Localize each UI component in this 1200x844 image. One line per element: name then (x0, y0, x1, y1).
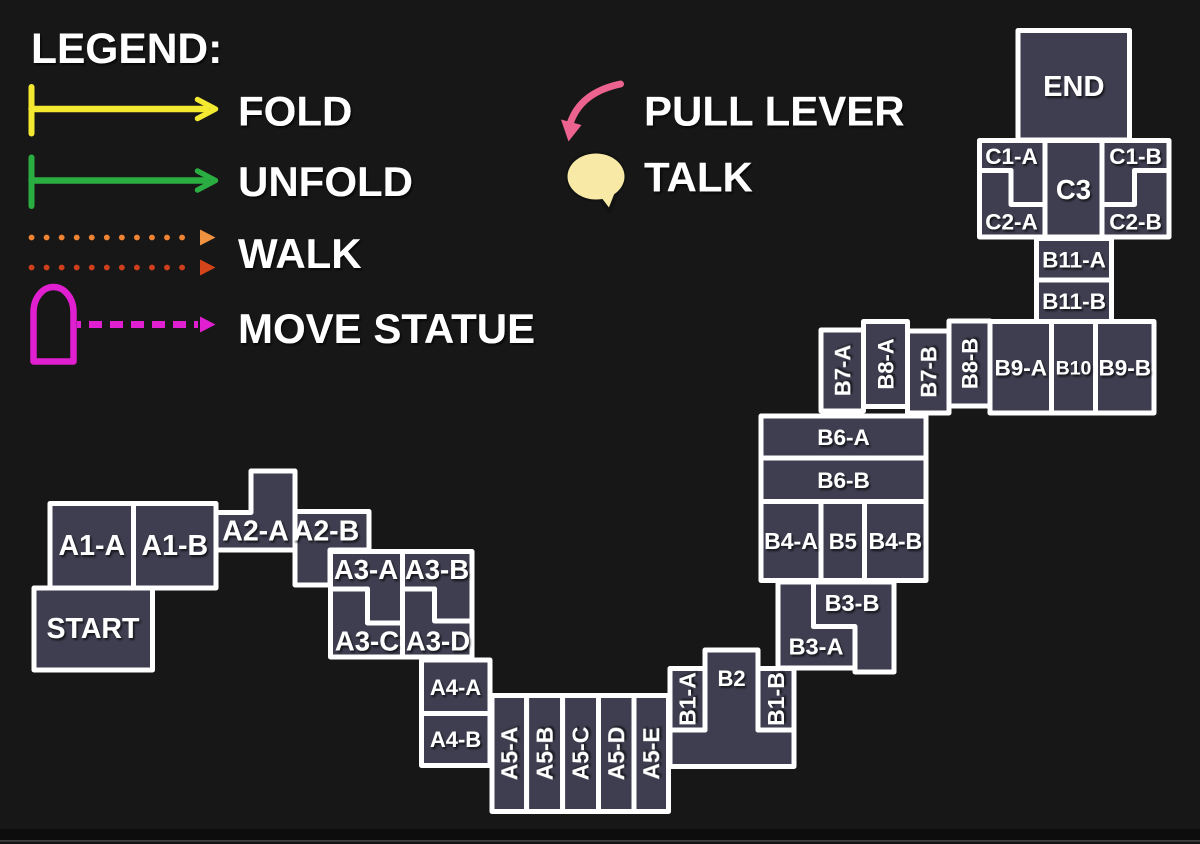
svg-text:A5-E: A5-E (638, 727, 664, 779)
svg-text:END: END (1043, 71, 1104, 103)
svg-text:A5-A: A5-A (497, 727, 523, 781)
svg-text:B1-A: B1-A (675, 672, 701, 726)
svg-text:B4-A: B4-A (764, 528, 818, 554)
svg-text:B6-B: B6-B (817, 468, 870, 493)
svg-text:WALK: WALK (238, 230, 362, 277)
svg-text:B3-A: B3-A (789, 633, 844, 659)
svg-text:B8-B: B8-B (957, 338, 982, 389)
svg-text:C1-A: C1-A (985, 144, 1038, 169)
svg-text:B11-A: B11-A (1042, 248, 1106, 273)
svg-text:C2-B: C2-B (1109, 210, 1162, 235)
svg-text:B4-B: B4-B (868, 528, 922, 554)
svg-text:C2-A: C2-A (985, 210, 1038, 235)
svg-text:MOVE STATUE: MOVE STATUE (238, 305, 535, 352)
svg-text:B9-B: B9-B (1099, 356, 1152, 381)
svg-text:B5: B5 (829, 529, 857, 554)
svg-text:FOLD: FOLD (238, 88, 352, 135)
svg-text:A1-A: A1-A (59, 530, 126, 562)
svg-text:A1-B: A1-B (142, 530, 209, 562)
svg-text:B8-A: B8-A (873, 338, 898, 389)
svg-text:B3-B: B3-B (825, 590, 880, 616)
svg-text:A5-B: A5-B (532, 727, 558, 781)
svg-text:B10: B10 (1056, 358, 1092, 380)
svg-text:B2: B2 (717, 666, 745, 691)
svg-text:B11-B: B11-B (1042, 289, 1106, 314)
svg-text:A2-A: A2-A (222, 516, 289, 548)
svg-text:A4-B: A4-B (430, 727, 481, 752)
svg-text:A3-A: A3-A (334, 554, 398, 585)
svg-text:A5-C: A5-C (568, 727, 594, 781)
svg-text:PULL LEVER: PULL LEVER (644, 88, 905, 135)
svg-text:C3: C3 (1056, 174, 1091, 205)
svg-text:A5-D: A5-D (603, 727, 629, 781)
svg-text:A3-D: A3-D (406, 625, 470, 656)
svg-text:B7-B: B7-B (916, 346, 941, 397)
svg-text:A3-C: A3-C (335, 625, 399, 656)
svg-text:C1-B: C1-B (1109, 144, 1162, 169)
svg-text:A3-B: A3-B (405, 554, 469, 585)
svg-text:B9-A: B9-A (995, 356, 1048, 381)
svg-text:START: START (47, 613, 140, 645)
svg-text:B6-A: B6-A (817, 425, 870, 450)
svg-text:A4-A: A4-A (430, 675, 481, 700)
svg-text:B1-B: B1-B (763, 672, 789, 726)
svg-text:UNFOLD: UNFOLD (238, 158, 413, 205)
svg-text:TALK: TALK (644, 154, 753, 201)
svg-text:B7-A: B7-A (830, 345, 855, 396)
svg-text:A2-B: A2-B (293, 516, 360, 548)
svg-text:LEGEND:: LEGEND: (31, 26, 222, 73)
